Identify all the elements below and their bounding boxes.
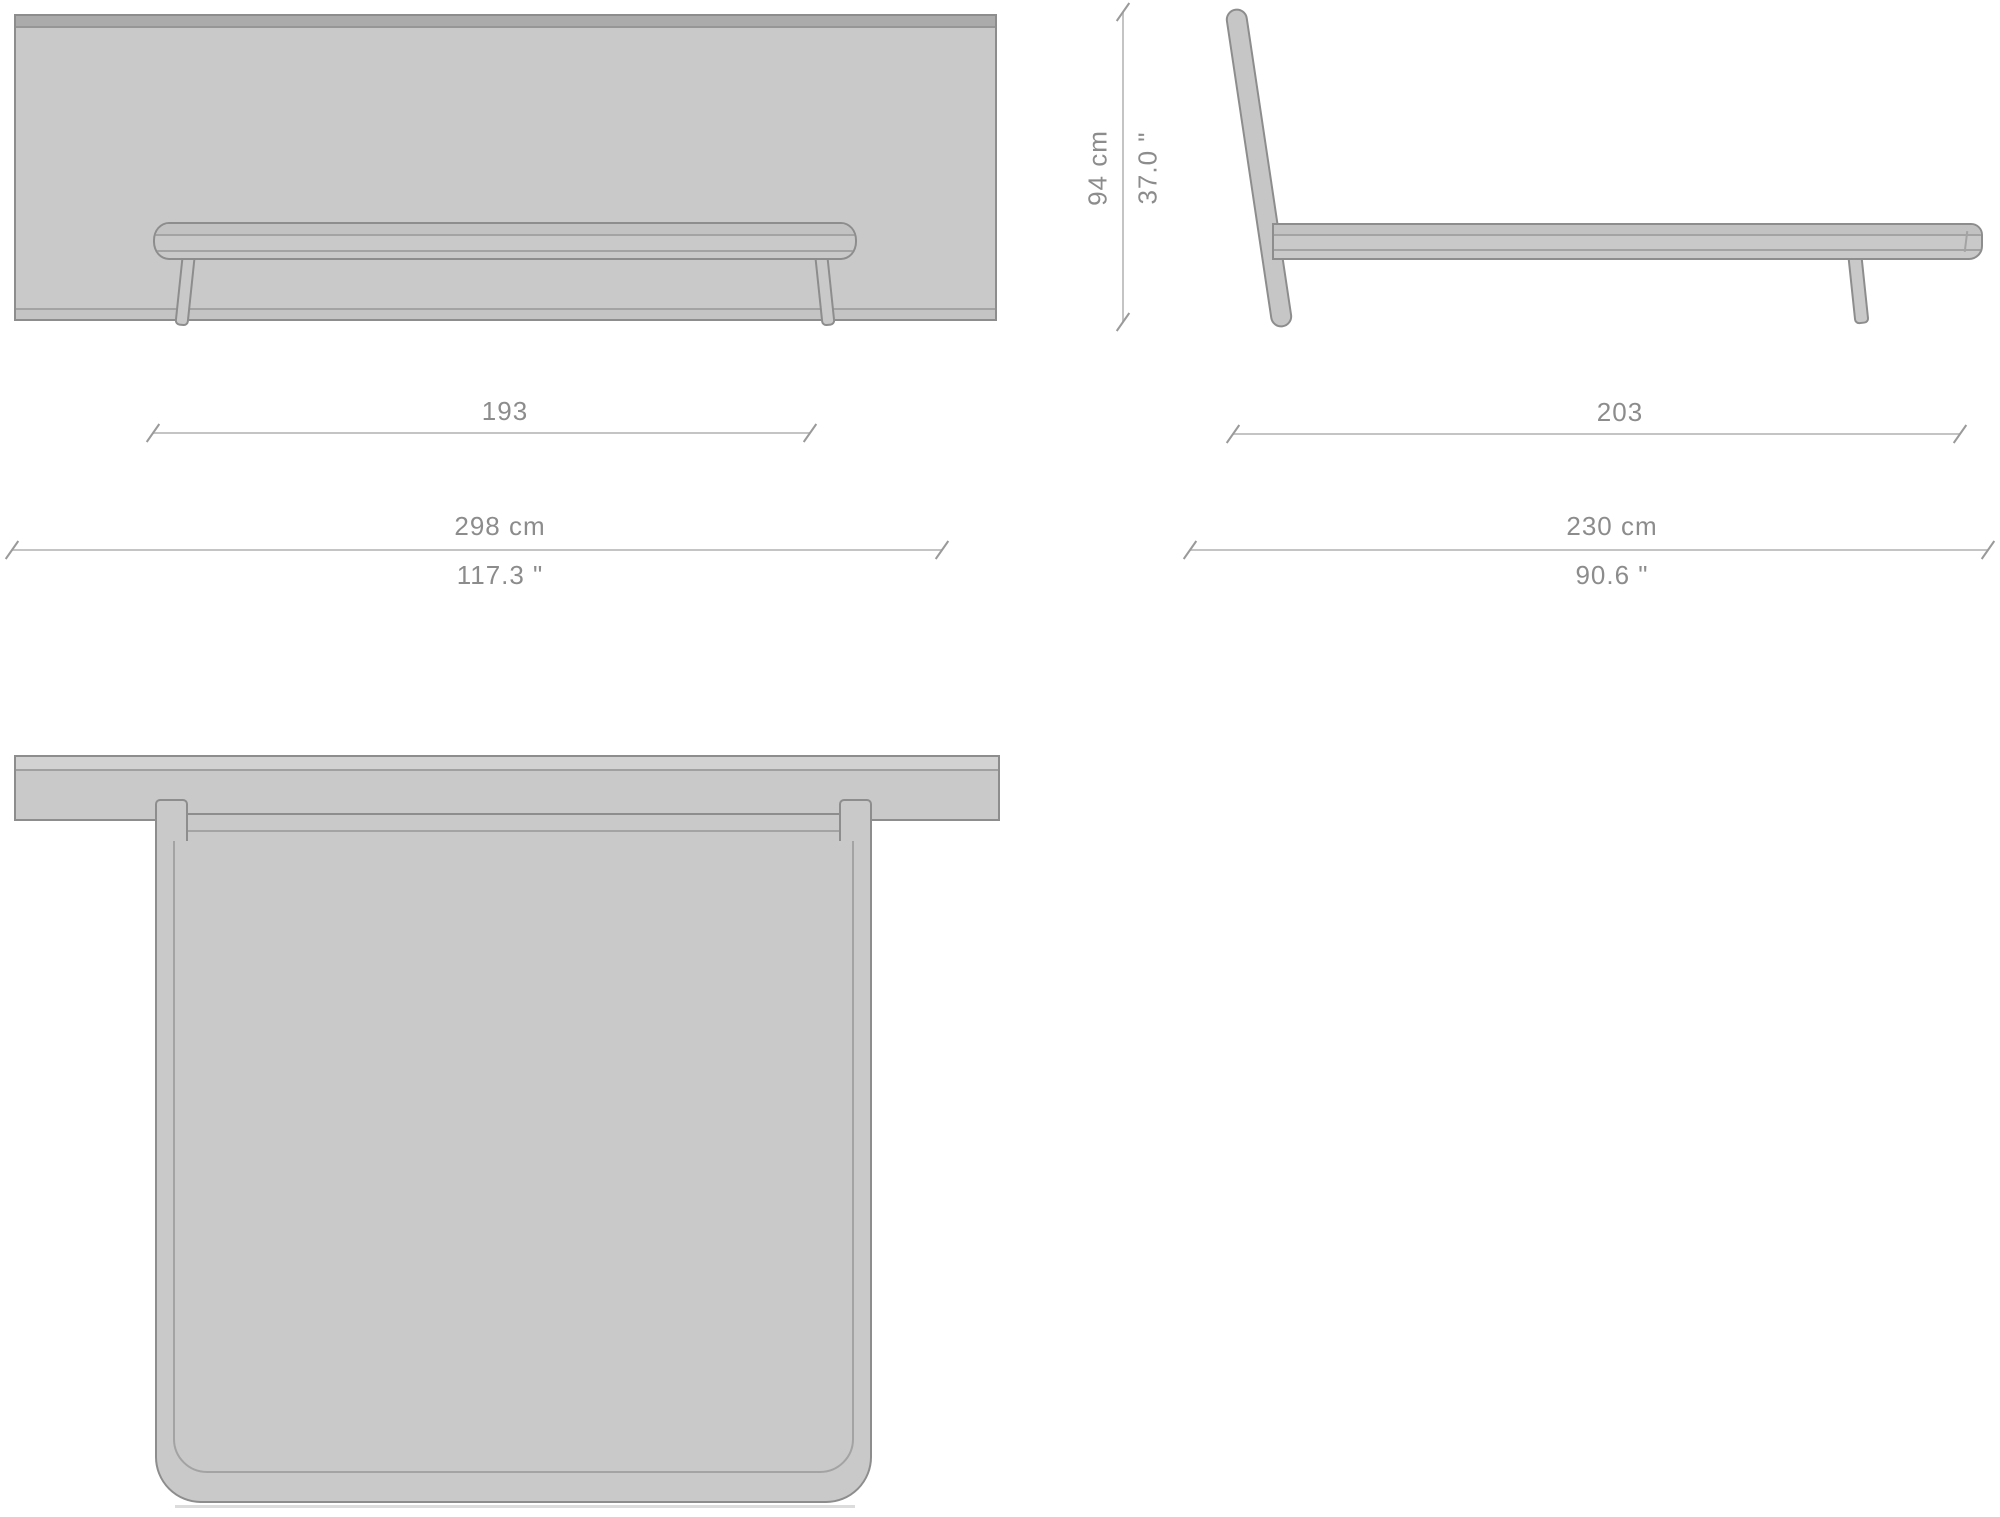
dimension-label-cm: 298 cm bbox=[454, 511, 545, 542]
side-headboard-post bbox=[1224, 7, 1293, 329]
dimension-label: 203 bbox=[1597, 397, 1643, 428]
dimension-line bbox=[1122, 12, 1124, 322]
front-bed-frame-top-band bbox=[155, 224, 855, 234]
dimension-line bbox=[1233, 433, 1960, 435]
dimension-line bbox=[153, 432, 810, 434]
dimension-label-inches: 37.0 " bbox=[1133, 131, 1164, 204]
dimension-label: 193 bbox=[482, 396, 528, 427]
dimension-line bbox=[12, 549, 942, 551]
side-bed-frame-line-lower bbox=[1274, 249, 1981, 251]
dimension-label-cm: 94 cm bbox=[1083, 130, 1114, 206]
side-bed-frame-line-upper bbox=[1274, 234, 1981, 236]
dimension-line bbox=[1190, 549, 1988, 551]
front-headboard-top-edge bbox=[16, 16, 995, 28]
top-bed-frame-shadow bbox=[175, 1505, 855, 1508]
front-bed-frame-line-upper bbox=[155, 234, 855, 236]
side-bed-frame-top-band bbox=[1274, 225, 1981, 234]
top-leg-tab-right bbox=[839, 799, 872, 841]
front-headboard bbox=[14, 14, 997, 321]
top-bed-frame-inner-border bbox=[173, 830, 854, 1473]
drawing-canvas: 193 298 cm 117.3 " 94 cm bbox=[0, 0, 2000, 1517]
front-bed-frame-line-lower bbox=[155, 250, 855, 252]
dimension-label-cm: 230 cm bbox=[1566, 511, 1657, 542]
dimension-label-inches: 90.6 " bbox=[1575, 560, 1648, 591]
side-bed-leg bbox=[1847, 255, 1869, 324]
front-headboard-bottom-edge bbox=[16, 308, 995, 319]
dimension-label-inches: 117.3 " bbox=[457, 560, 544, 591]
side-bed-frame bbox=[1272, 223, 1983, 260]
top-bed-frame bbox=[155, 813, 872, 1503]
top-leg-tab-left bbox=[155, 799, 188, 841]
top-headboard-top-edge bbox=[16, 757, 998, 771]
front-bed-frame bbox=[153, 222, 857, 260]
